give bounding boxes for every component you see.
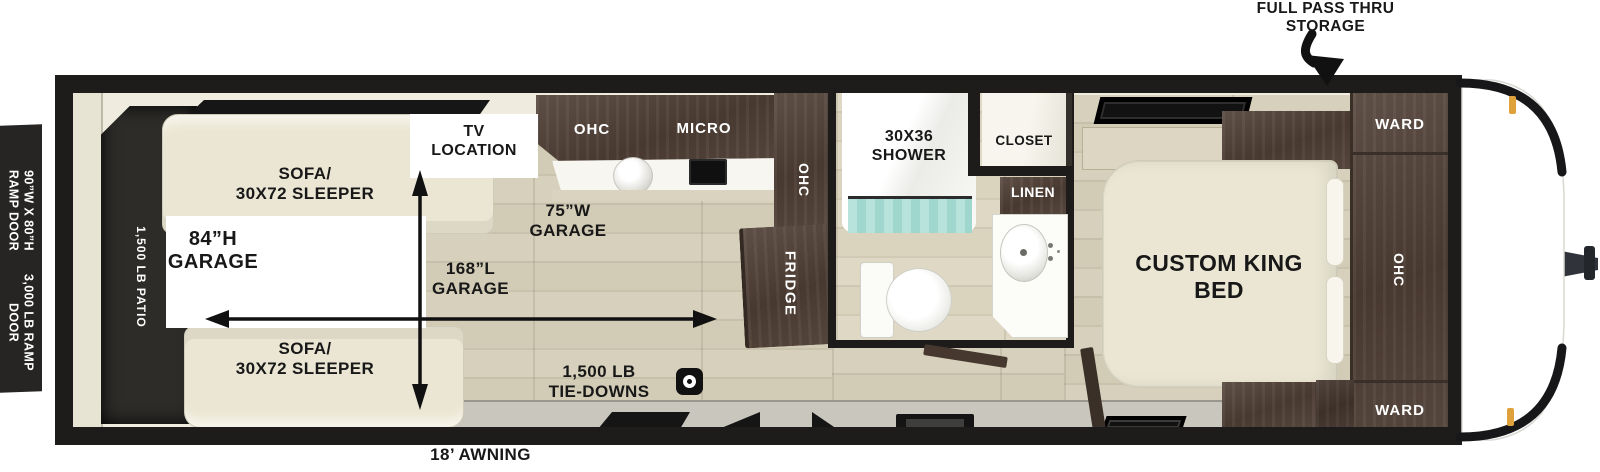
- wardrobe-divider-top: [1350, 152, 1450, 155]
- trailer-wall-top: [55, 75, 1462, 93]
- kitchen-ohc-label: OHC: [556, 121, 628, 138]
- bed-footboard-cabinet-2: [1316, 380, 1354, 428]
- sofa-bottom-label: SOFA/ 30X72 SLEEPER: [170, 339, 440, 378]
- front-cap-body: [1462, 80, 1564, 440]
- micro-label: MICRO: [658, 120, 750, 137]
- front-cap-trim-bottom: [1460, 348, 1562, 437]
- kitchen-lower-cabinet: [552, 190, 780, 201]
- ramp-door-rating-label: 3,000 LB RAMP DOOR: [7, 248, 36, 398]
- trailer-wall-bottom: [55, 427, 1462, 445]
- front-cap-trim-top: [1460, 83, 1562, 172]
- full-pass-thru-storage-label: FULL PASS THRU STORAGE: [1238, 0, 1413, 36]
- trailer-wall-front: [1448, 75, 1462, 445]
- ward-bottom-label: WARD: [1352, 402, 1448, 419]
- garage-length-label: 168”L GARAGE: [418, 259, 523, 298]
- kitchen-counter: [552, 158, 782, 194]
- bed-footboard-cabinet: [1222, 382, 1316, 428]
- awning-label: 18’ AWNING: [388, 445, 573, 465]
- bedroom-ohc-label: OHC: [1391, 240, 1407, 300]
- vanity-drain: [1020, 249, 1027, 256]
- sofa-top-label: SOFA/ 30X72 SLEEPER: [170, 164, 440, 203]
- front-cap: [1456, 70, 1600, 460]
- tie-downs-label: 1,500 LB TIE-DOWNS: [528, 362, 670, 401]
- hitch-coupler: [1556, 250, 1598, 278]
- toilet-bowl: [886, 268, 952, 332]
- marker-light-top: [1509, 96, 1516, 114]
- closet-interior: [982, 86, 1072, 166]
- cooktop: [689, 159, 727, 185]
- closet-partition-horizontal: [968, 166, 1068, 176]
- garage-height-label: 84”H GARAGE: [158, 228, 268, 274]
- tie-down-icon-ring: [683, 375, 696, 388]
- kitchen-ohc-side-label: OHC: [796, 150, 812, 210]
- ward-top-label: WARD: [1352, 116, 1448, 133]
- vanity-faucet: [1048, 243, 1053, 248]
- shower-curtain: [848, 196, 972, 233]
- trailer-wall-rear: [55, 75, 73, 445]
- marker-light-bottom: [1507, 408, 1514, 426]
- shower-label: 30X36 SHOWER: [848, 128, 970, 165]
- fridge-label: FRIDGE: [781, 224, 798, 344]
- hitch-jack: [1584, 246, 1595, 280]
- rv-floorplan-diagram: FULL PASS THRU STORAGE 18’ AWNING 90”W X…: [0, 0, 1600, 472]
- linen-label: LINEN: [1000, 184, 1066, 200]
- king-bed-label: CUSTOM KING BED: [1104, 250, 1334, 303]
- garage-width-label: 75”W GARAGE: [513, 201, 623, 240]
- patio-rating-label: 1,500 LB PATIO: [133, 202, 147, 352]
- storage-callout-arrow: [1305, 34, 1314, 63]
- ramp-door-panel: [73, 93, 103, 427]
- closet-label: CLOSET: [982, 133, 1066, 149]
- wardrobe-divider-bottom: [1350, 380, 1450, 383]
- tv-location-label: TV LOCATION: [410, 123, 538, 160]
